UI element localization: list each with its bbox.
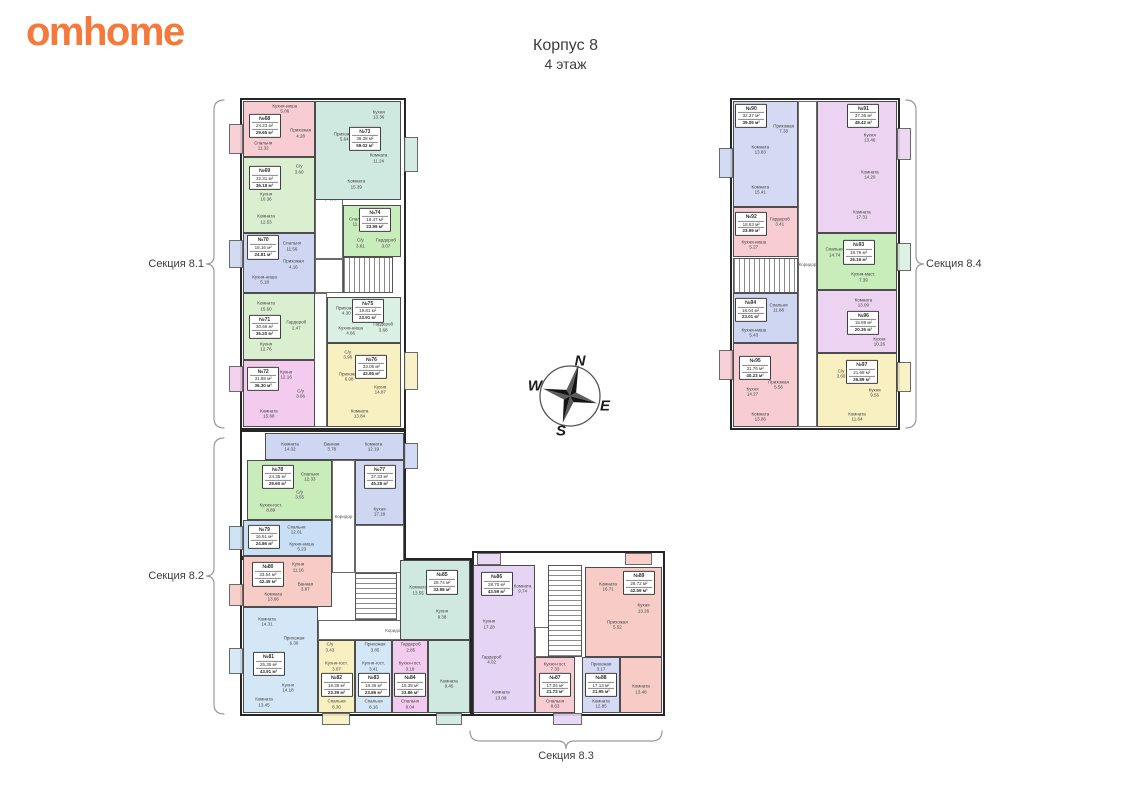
unit-info-label: №7737.33 м²45.28 м² (364, 465, 396, 489)
balcony (404, 137, 418, 172)
section-8-1-label: Секция 8.1 (120, 258, 204, 270)
unit-info-label: №9137.36 м²48.42 м² (847, 103, 879, 127)
room-label: Кухня14.18 (282, 682, 294, 693)
corridor (355, 525, 404, 573)
room-label: Кухня14.27 (746, 386, 758, 397)
room-label: Ванная3.87 (298, 581, 313, 592)
unit-info-label: №8033.64 м²42.45 м² (252, 562, 284, 586)
unit-info-label: №7633.06 м²42.65 м² (355, 354, 387, 378)
unit-info-label: №7418.47 м²23.99 м² (359, 207, 391, 231)
balcony (897, 243, 911, 271)
room-label: Комната15.60 (257, 301, 275, 312)
section-8-2-label: Секция 8.2 (120, 570, 204, 582)
staircase (733, 258, 798, 293)
unit-info-label: №8928.72 м²42.59 м² (623, 571, 655, 595)
room-label: Гардероб3.07 (376, 238, 396, 249)
room-label: С/у3.60 (295, 164, 304, 175)
section-8-3-label: Секция 8.3 (516, 750, 616, 762)
room-label: Комната13.08 (492, 690, 510, 701)
unit-info-label: №7231.88 м²36.30 м² (247, 367, 279, 391)
unit-info-label: №9418.04 м²23.01 м² (735, 298, 767, 322)
unit-info-label: №8318.36 м²23.86 м² (358, 673, 390, 697)
corridor (315, 259, 343, 293)
room-label: Комната11.64 (848, 411, 866, 422)
unit-info-label: №8418.38 м²23.86 м² (394, 673, 426, 697)
corridor: Коридор (798, 101, 817, 427)
room-label: Комната14.32 (281, 441, 299, 452)
balcony (625, 553, 652, 565)
room-label: Гардероб3.68 (373, 322, 393, 333)
room-label: Кухня10.36 (260, 191, 272, 202)
corridor: Коридор (332, 460, 355, 573)
unit-info-label: №7824.35 м²29.60 м² (262, 465, 294, 489)
room-label: Кухня9.38 (436, 609, 448, 620)
unit-info-label: №7338.38 м²59.02 м² (349, 127, 381, 151)
room-label: Комната17.31 (853, 209, 871, 220)
room-label: Комната15.41 (751, 185, 769, 196)
room-label: Спальня11.56 (283, 241, 301, 252)
room-label: Гардероб3.41 (770, 217, 790, 228)
room-label: Спальня8.30 (327, 699, 345, 710)
balcony (436, 713, 462, 725)
unit-info-label: №9218.63 м²23.99 м² (735, 212, 767, 236)
room-label: Кухня10.26 (873, 336, 885, 347)
room-label: Комната15.68 (260, 408, 278, 419)
balcony (897, 128, 911, 160)
room-label: Гардероб2.47 (286, 320, 306, 331)
room-label: Кухня-ниша5.43 (741, 328, 766, 339)
room-label: Прихожая6.36 (284, 636, 305, 647)
room-label: Кухня17.18 (373, 507, 385, 518)
room-label: С/у3.66 (296, 388, 305, 399)
room-label: Комната13.55 (409, 585, 427, 596)
corridor-label: Коридор (799, 262, 817, 267)
room-label: Комната13.09 (855, 297, 873, 308)
room-label: Кухня-ниша5.27 (741, 240, 766, 251)
balcony (229, 584, 243, 606)
room-label: Комната12.85 (592, 699, 610, 710)
room-label: Комната11.24 (370, 153, 388, 164)
room-label: Кухня-ниша4.66 (338, 326, 363, 337)
room-label: С/у3.96 (343, 349, 352, 360)
balcony (404, 443, 418, 469)
building-title: Корпус 8 (0, 36, 1131, 56)
staircase (355, 573, 397, 620)
balcony (229, 648, 243, 674)
unit-info-label: №6932.31 м²36.18 м² (249, 166, 281, 190)
room-label: Спальня8.63 (546, 699, 564, 710)
apartment-unit[interactable] (428, 640, 470, 713)
unit-info-label: №9032.37 м²39.05 м² (735, 104, 767, 128)
compass-east-label: E (600, 398, 610, 415)
staircase (548, 565, 582, 657)
room-label: Спальня11.88 (769, 303, 787, 314)
room-label: Спальня12.33 (301, 471, 319, 482)
room-label: Кухня11.16 (292, 562, 304, 573)
room-label: С/у3.55 (295, 489, 304, 500)
room-label: Прихожая4.16 (283, 259, 304, 270)
room-label: Гардероб4.02 (482, 654, 502, 665)
room-label: Комната15.39 (347, 179, 365, 190)
room-label: Кухня9.56 (869, 388, 881, 399)
room-label: Комната13.83 (751, 144, 769, 155)
compass-star-icon (536, 357, 606, 430)
unit-info-label: №6824.23 м²29.65 м² (249, 114, 281, 138)
compass-circle (540, 366, 600, 426)
room-label: Гардероб2.85 (401, 642, 421, 653)
corridor-label: Коридор (335, 514, 353, 519)
brace-section-8-2 (206, 438, 224, 714)
corridor (313, 293, 327, 427)
room-label: Кухня-гост.7.33 (544, 662, 567, 673)
room-label: Комната14.31 (258, 616, 276, 627)
balcony (719, 148, 733, 178)
compass-north-label: N (575, 353, 586, 370)
room-label: Прихожая4.28 (290, 128, 311, 139)
balcony (404, 352, 418, 390)
unit-info-label: №8218.36 м²23.39 м² (321, 673, 353, 697)
room-label: Кухня13.26 (637, 603, 649, 614)
unit-info-label: №8817.13 м²21.95 м² (585, 673, 617, 697)
room-label: Прихожая5.52 (607, 619, 628, 630)
staircase (343, 257, 393, 293)
balcony (477, 553, 501, 565)
unit-info-label: №7130.66 м²35.20 м² (249, 314, 281, 338)
unit-info-label: №9318.76 м²26.16 м² (843, 240, 875, 264)
floor-title: 4 этаж (0, 56, 1131, 74)
balcony (229, 526, 243, 550)
room-label: Комната13.06 (751, 412, 769, 423)
room-label: Прихожая5.56 (768, 380, 789, 391)
room-label: Комната13.48 (632, 684, 650, 695)
balcony (322, 713, 350, 725)
room-label: Прихожая3.85 (365, 642, 386, 653)
room-label: Спальня14.74 (826, 247, 844, 258)
unit-info-label: №7916.51 м²24.86 м² (248, 524, 280, 548)
room-label: Комната9.74 (514, 583, 532, 594)
room-label: Кухня17.28 (483, 619, 495, 630)
room-label: Комната16.71 (599, 581, 617, 592)
balcony (719, 350, 733, 380)
unit-info-label: №7018.16 м²24.81 м² (247, 235, 279, 259)
room-label: Комната12.19 (365, 441, 383, 452)
room-label: С/у3.60 (837, 368, 846, 379)
room-label: Ванная3.78 (324, 441, 339, 452)
room-label: С/у3.61 (356, 238, 365, 249)
unit-info-label: №9721.68 м²26.89 м² (846, 360, 878, 384)
room-label: Кухня13.46 (864, 133, 876, 144)
room-label: Комната12.53 (257, 214, 275, 225)
room-label: Кухня-гост.3.07 (325, 661, 348, 672)
room-label: Прихожая3.17 (591, 662, 612, 673)
room-label: Кухня-ниша5.23 (289, 541, 314, 552)
brace-section-8-1 (206, 100, 224, 428)
brace-section-8-3 (470, 731, 662, 749)
unit-info-label: №7519.81 м²23.91 м² (352, 299, 384, 323)
room-label: Кухня12.76 (260, 341, 272, 352)
unit-info-label: №9615.89 м²20.35 м² (847, 311, 879, 335)
balcony (229, 366, 243, 392)
room-label: Кухня-гост.3.18 (399, 661, 422, 672)
section-8-4-label: Секция 8.4 (926, 258, 1026, 270)
unit-info-label: №8628.70 м²43.59 м² (481, 572, 513, 596)
balcony (229, 124, 243, 154)
room-label: Комната13.84 (351, 408, 369, 419)
room-label: Спальня8.16 (364, 699, 382, 710)
room-label: Прихожая7.38 (773, 123, 794, 134)
plan-title: Корпус 8 4 этаж (0, 36, 1131, 74)
room-label: Кухня-ниша5.18 (252, 274, 277, 285)
room-label: Кухня-гост.8.89 (259, 503, 282, 514)
balcony (553, 713, 582, 725)
room-label: Спальня12.01 (287, 525, 305, 536)
room-label: Спальня8.04 (401, 699, 419, 710)
unit-info-label: №8717.04 м²21.73 м² (539, 673, 571, 697)
balcony (897, 362, 911, 392)
compass-west-label: W (528, 378, 542, 395)
compass-south-label: S (556, 423, 566, 440)
room-label: Кухня-маст.7.39 (851, 272, 875, 283)
room-label: Комната13.45 (255, 697, 273, 708)
room-label: Комната13.66 (264, 591, 282, 602)
room-label: Кухня14.87 (374, 385, 386, 396)
room-label: Комната14.20 (861, 170, 879, 181)
unit-info-label: №8528.74 м²33.98 м² (426, 570, 458, 594)
room-label: Кухня-гост.3.41 (362, 661, 385, 672)
room-label: Кухня12.16 (280, 369, 292, 380)
room-label: Спальня11.32 (254, 140, 272, 151)
floor-plan: omhome Корпус 8 4 этаж Секция 8.1 Секция… (0, 0, 1131, 800)
balcony (229, 240, 243, 268)
unit-info-label: №8125.35 м²43.91 м² (253, 652, 285, 676)
unit-info-label: №9531.76 м²40.23 м² (739, 356, 771, 380)
room-label: Кухня13.36 (373, 109, 385, 120)
room-label: С/у3.43 (325, 642, 334, 653)
room-label: Комната9.45 (440, 678, 458, 689)
